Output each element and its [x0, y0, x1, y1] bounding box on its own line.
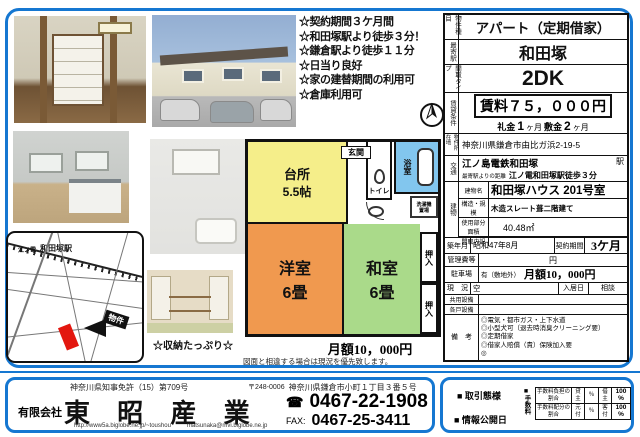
remark-item: ◎定期借家 — [481, 333, 625, 341]
photo-detail — [182, 69, 204, 83]
building-subrows: 建物名 和田塚ハウス 201号室 構造・規模 木造スレート葺二階建て 使用部分面… — [459, 182, 627, 237]
built-value: 昭和47年8月 — [471, 238, 555, 253]
deposit-label: 敷金 — [544, 120, 562, 133]
toilet-icon — [374, 169, 385, 184]
spec-row-terms-label: 賃貸条件 — [445, 93, 459, 133]
highlight-item: ☆倉庫利用可 — [299, 88, 437, 103]
photo-detail — [169, 296, 211, 298]
photo-detail — [75, 151, 109, 171]
laundry-label-line2: 置場 — [412, 208, 436, 214]
spec-row-access-value: 江ノ島電鉄和田塚 駅 最寄駅よりの距離 江ノ電和田塚駅徒歩３分 — [459, 156, 627, 181]
phone-number: 0467-22-1908 — [309, 391, 427, 413]
building-name-row: 建物名 和田塚ハウス 201号室 — [459, 182, 627, 199]
area-value: 40.48㎡ — [489, 221, 627, 234]
common-equip-value — [479, 295, 627, 304]
spec-row-building: 建物 建物名 和田塚ハウス 201号室 構造・規模 木造スレート葺二階建て 使用… — [445, 182, 627, 238]
map-line-label: 江ノ電 — [18, 245, 36, 254]
fee-burden-v1: ％ — [585, 388, 599, 404]
photo-detail — [69, 179, 121, 213]
key-money-value: 1 — [517, 119, 524, 133]
key-money-unit: ヶ月 — [526, 122, 542, 133]
spec-row-type-value: アパート（定期借家） — [459, 15, 627, 39]
room-japanese: 和室 6畳 — [344, 224, 420, 334]
photo-detail — [260, 99, 292, 121]
spec-row-terms-value: 賃料７５，０００円 礼金 1 ヶ月 敷金 2 ヶ月 — [459, 93, 627, 133]
photo-detail — [210, 101, 254, 123]
fee-burden-c2: 借主 — [599, 388, 612, 404]
spec-row-station-value: 和田塚 — [459, 40, 627, 64]
license-number: 神奈川県知事免許（15）第709号 — [70, 382, 188, 393]
highlight-item: ☆和田塚駅より徒歩３分！ — [299, 30, 437, 45]
rental-flyer-page: ☆収納たっぷり☆ ☆契約期間３ケ月間 ☆和田塚駅より徒歩３分！ ☆鎌倉駅より徒歩… — [0, 0, 640, 437]
location-map: 江ノ電 和田塚駅 物件 — [6, 231, 144, 363]
fee-label: 手数料 — [521, 395, 531, 415]
movein-value: 相談 — [589, 283, 627, 294]
spec-row-address: 物件所在地 神奈川県鎌倉市由比ガ浜2-19-5 — [445, 134, 627, 156]
bathtub-icon — [417, 148, 434, 186]
spec-row-layout-value: 2DK — [459, 65, 627, 92]
photo-detail — [147, 323, 233, 333]
photo-detail — [222, 67, 244, 81]
spec-row-building-label: 建物 — [445, 182, 459, 237]
contract-value: 3ケ月 — [585, 238, 627, 253]
company-email: matsunaka@mvi.biglobe.ne.jp — [187, 423, 267, 429]
compass-icon — [418, 101, 446, 129]
keymoney-deposit-line: 礼金 1 ヶ月 敷金 2 ヶ月 — [497, 119, 588, 133]
spec-row-address-label: 物件所在地 — [445, 134, 459, 155]
photo-building-exterior — [152, 15, 296, 127]
deal-type-label: ■ 取引態様 — [457, 389, 501, 402]
access-station-suffix: 駅 — [616, 156, 624, 170]
room-western-size: 6畳 — [283, 279, 308, 303]
highlight-item: ☆家の建替期間の利用可 — [299, 73, 437, 88]
company-contacts-line: http://www5a.biglobe.ne.jp/~toushou mats… — [74, 423, 267, 429]
unit-equip-value — [479, 305, 627, 314]
highlight-item: ☆契約期間３ケ月間 — [299, 15, 437, 30]
company-url: http://www5a.biglobe.ne.jp/~toushou — [74, 423, 171, 429]
fee-burden-label: 手数料負担の割合 — [536, 388, 572, 404]
fee-row-burden: 手数料負担の割合 貸主 ％ 借主 100 % — [536, 388, 631, 404]
photo-detail — [172, 149, 220, 175]
room-western-label: 洋室 — [279, 255, 311, 279]
spec-row-common-equip: 共用設備 — [445, 295, 627, 305]
closet-upper: 押入 — [420, 232, 438, 283]
photo-detail — [260, 69, 282, 83]
fax-label: FAX: — [286, 416, 306, 426]
spec-row-address-value: 神奈川県鎌倉市由比ガ浜2-19-5 — [459, 134, 627, 155]
room-kitchen-label: 台所 — [284, 164, 310, 183]
mgmt-value: 円 — [479, 254, 627, 265]
footer-divider-line — [0, 371, 640, 373]
area-row: 使用部分面積 40.48㎡ — [459, 218, 627, 237]
room-japanese-label: 和室 — [366, 255, 398, 279]
laundry-area: 洗濯機 置場 — [410, 196, 438, 218]
common-equip-label: 共用設備 — [445, 295, 479, 304]
transaction-box: ■ 取引態様 ■ 情報公開日 ■ 手数料 手数料負担の割合 貸主 ％ 借主 10… — [440, 377, 634, 433]
rent-value: 賃料７５，０００円 — [474, 94, 612, 118]
photo-detail — [195, 218, 237, 244]
room-japanese-size: 6畳 — [370, 279, 395, 303]
spec-row-terms: 賃貸条件 賃料７５，０００円 礼金 1 ヶ月 敷金 2 ヶ月 — [445, 93, 627, 134]
status-value: 空 — [471, 283, 559, 294]
spec-row-station: 最寄駅 和田塚 — [445, 40, 627, 65]
parking-note: 有（敷地外） — [481, 269, 520, 279]
property-spec-table: 物件種目 アパート（定期借家） 最寄駅 和田塚 間取タイプ 2DK 賃貸条件 賃… — [443, 13, 629, 362]
room-toilet-label: トイレ — [369, 186, 390, 196]
spec-row-station-label: 最寄駅 — [445, 40, 459, 64]
fee-row-split: 手数料配分の割合 元付 ％ 客付 100 % — [536, 404, 631, 420]
key-money-label: 礼金 — [497, 120, 515, 133]
remark-item: ◎ — [481, 350, 625, 358]
closet-upper-label: 押入 — [424, 250, 435, 266]
photo-detail — [169, 310, 211, 312]
photo-detail — [52, 34, 104, 106]
structure-value: 木造スレート葺二階建て — [489, 203, 627, 214]
highlight-item: ☆鎌倉駅より徒歩１１分 — [299, 44, 437, 59]
fax-number: 0467-25-3411 — [312, 412, 411, 430]
access-line-name: 江ノ島電鉄和田塚 — [462, 156, 538, 170]
highlight-item: ☆日当り良好 — [299, 59, 437, 74]
fee-mark: ■ — [524, 388, 528, 395]
structure-row: 構造・規模 木造スレート葺二階建て — [459, 199, 627, 218]
phone-icon: ☎ — [286, 394, 303, 411]
spec-row-layout-label: 間取タイプ — [445, 65, 459, 92]
room-western: 洋室 6畳 — [248, 224, 344, 334]
building-name-value: 和田塚ハウス 201号室 — [489, 182, 627, 198]
area-label: 使用部分面積 — [459, 218, 489, 236]
room-bath-label: 浴室 — [402, 159, 413, 175]
structure-label: 構造・規模 — [459, 199, 489, 217]
closet-lower-label: 押入 — [424, 301, 435, 317]
built-label: 築年月 — [445, 238, 471, 253]
access-distance-line: 最寄駅よりの距離 江ノ電和田塚駅徒歩３分 — [459, 170, 627, 181]
postal-code: 〒248-0006 — [248, 382, 285, 393]
contract-label: 契約期間 — [555, 238, 585, 253]
map-road — [87, 231, 129, 363]
fee-split-v1: ％ — [585, 404, 599, 420]
room-kitchen: 台所 5.5帖 — [248, 142, 348, 224]
movein-label: 入居日 — [559, 283, 589, 294]
photo-detail — [160, 47, 288, 66]
parking-fee: 月額10，000円 — [524, 266, 596, 282]
spec-row-type: 物件種目 アパート（定期借家） — [445, 15, 627, 40]
spec-row-layout: 間取タイプ 2DK — [445, 65, 627, 93]
unit-equip-label: 各戸設備 — [445, 305, 479, 314]
spec-row-remarks: 備 考 ◎電気・都市ガス・上下水道 ◎小型犬可（退去時消臭クリーニング要） ◎定… — [445, 315, 627, 360]
photo-detail — [160, 99, 200, 121]
room-bath: 浴室 — [394, 142, 438, 194]
distance-label: 最寄駅よりの距離 — [462, 172, 506, 180]
fee-split-c1: 元付 — [572, 404, 585, 420]
room-kitchen-size: 5.5帖 — [283, 183, 312, 200]
floor-plan: 台所 5.5帖 玄関 トイレ 浴室 洗濯機 置場 洋室 6畳 和室 6畳 押入 — [245, 139, 441, 337]
deposit-value: 2 — [564, 119, 571, 133]
spec-row-type-label: 物件種目 — [445, 15, 459, 39]
photo-detail — [209, 276, 229, 320]
fee-burden-v2: 100 % — [612, 388, 631, 404]
fee-table: 手数料負担の割合 貸主 ％ 借主 100 % 手数料配分の割合 元付 ％ 客付 … — [535, 387, 631, 420]
phone-line: ☎ 0467-22-1908 — [286, 391, 428, 413]
photo-interior-room — [14, 16, 146, 123]
photo-detail — [151, 276, 171, 320]
building-name-label: 建物名 — [459, 182, 489, 198]
fee-split-v2: 100 % — [612, 404, 631, 420]
photo-closet — [147, 270, 233, 333]
spec-row-access-label: 交通 — [445, 156, 459, 181]
deposit-unit: ヶ月 — [573, 122, 589, 133]
spec-row-mgmt: 管理費等 円 — [445, 254, 627, 266]
spec-row-unit-equip: 各戸設備 — [445, 305, 627, 315]
photo-detail — [29, 153, 63, 173]
remarks-list: ◎電気・都市ガス・上下水道 ◎小型犬可（退去時消臭クリーニング要） ◎定期借家 … — [479, 315, 627, 360]
photo-detail — [40, 16, 47, 123]
company-prefix: 有限会社 — [18, 404, 62, 420]
storage-caption: ☆収納たっぷり☆ — [143, 337, 243, 352]
remarks-label: 備 考 — [445, 315, 479, 360]
fee-split-c2: 客付 — [599, 404, 612, 420]
spec-row-parking: 駐車場 有（敷地外） 月額10，000円 — [445, 267, 627, 283]
parking-label: 駐車場 — [445, 267, 479, 282]
highlights-list: ☆契約期間３ケ月間 ☆和田塚駅より徒歩３分！ ☆鎌倉駅より徒歩１１分 ☆日当り良… — [299, 15, 437, 102]
mgmt-label: 管理費等 — [445, 254, 479, 265]
photo-kitchen — [13, 131, 129, 223]
property-parcel — [58, 323, 79, 350]
distance-value: 江ノ電和田塚駅徒歩３分 — [509, 170, 597, 181]
spec-row-built: 築年月 昭和47年8月 契約期間 3ケ月 — [445, 238, 627, 254]
parking-value: 有（敷地外） 月額10，000円 — [479, 267, 627, 282]
agency-box: 神奈川県知事免許（15）第709号 〒248-0006 神奈川県鎌倉市小町１丁目… — [5, 377, 435, 433]
status-label: 現 況 — [445, 283, 471, 294]
remark-item: ◎電気・都市ガス・上下水道 — [481, 317, 625, 325]
plan-disclaimer: 図面と相違する場合は現況を優先致します。 — [243, 356, 392, 367]
fax-line: FAX: 0467-25-3411 — [286, 412, 410, 430]
photo-detail — [98, 22, 132, 34]
entrance-label: 玄関 — [341, 146, 371, 159]
photo-bathroom — [150, 139, 245, 254]
closet-lower: 押入 — [420, 283, 438, 334]
publish-date-label: ■ 情報公開日 — [454, 413, 507, 426]
fee-split-label: 手数料配分の割合 — [536, 404, 572, 420]
spec-row-access: 交通 江ノ島電鉄和田塚 駅 最寄駅よりの距離 江ノ電和田塚駅徒歩３分 — [445, 156, 627, 182]
access-line: 江ノ島電鉄和田塚 駅 — [459, 156, 627, 170]
fee-label-block: ■ 手数料 — [521, 388, 531, 415]
remark-item: ◎借家人賠償（責）保険加入要 — [481, 342, 625, 350]
spec-row-status: 現 況 空 入居日 相談 — [445, 283, 627, 295]
door-arc — [366, 202, 384, 220]
fee-burden-c1: 貸主 — [572, 388, 585, 404]
